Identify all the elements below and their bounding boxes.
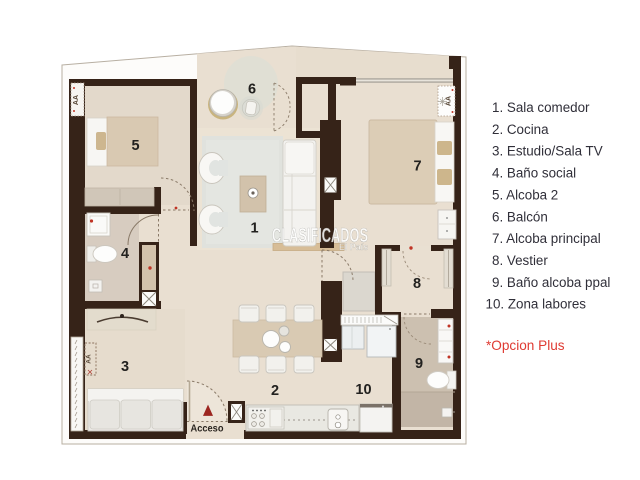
svg-text:5: 5 (131, 138, 139, 154)
svg-text:4: 4 (121, 246, 129, 262)
svg-text:7: 7 (413, 159, 421, 175)
svg-text:3. Estudio/Sala TV: 3. Estudio/Sala TV (492, 144, 603, 159)
svg-text:6: 6 (248, 82, 256, 98)
svg-text:7. Alcoba principal: 7. Alcoba principal (492, 231, 601, 246)
svg-text:10. Zona labores: 10. Zona labores (486, 297, 587, 312)
svg-text:El País: El País (339, 242, 368, 253)
svg-text:3: 3 (121, 359, 129, 375)
svg-text:9. Baño alcoba ppal: 9. Baño alcoba ppal (492, 275, 610, 290)
svg-text:AA: AA (86, 354, 93, 364)
svg-text:1: 1 (250, 221, 258, 237)
svg-text:2: 2 (271, 383, 279, 399)
svg-text:8: 8 (413, 276, 421, 292)
svg-text:AA: AA (446, 96, 453, 106)
svg-text:6. Balcón: 6. Balcón (492, 209, 548, 224)
svg-text:Acceso: Acceso (191, 424, 224, 435)
svg-text:4. Baño social: 4. Baño social (492, 166, 576, 181)
svg-text:9: 9 (415, 356, 423, 372)
svg-text:2. Cocina: 2. Cocina (492, 122, 549, 137)
svg-text:8. Vestier: 8. Vestier (492, 253, 548, 268)
svg-text:1. Sala comedor: 1. Sala comedor (492, 100, 590, 115)
svg-text:*Opcion Plus: *Opcion Plus (486, 338, 565, 353)
svg-text:AA: AA (73, 95, 80, 105)
svg-text:10: 10 (355, 382, 371, 398)
svg-text:5. Alcoba 2: 5. Alcoba 2 (492, 187, 558, 202)
